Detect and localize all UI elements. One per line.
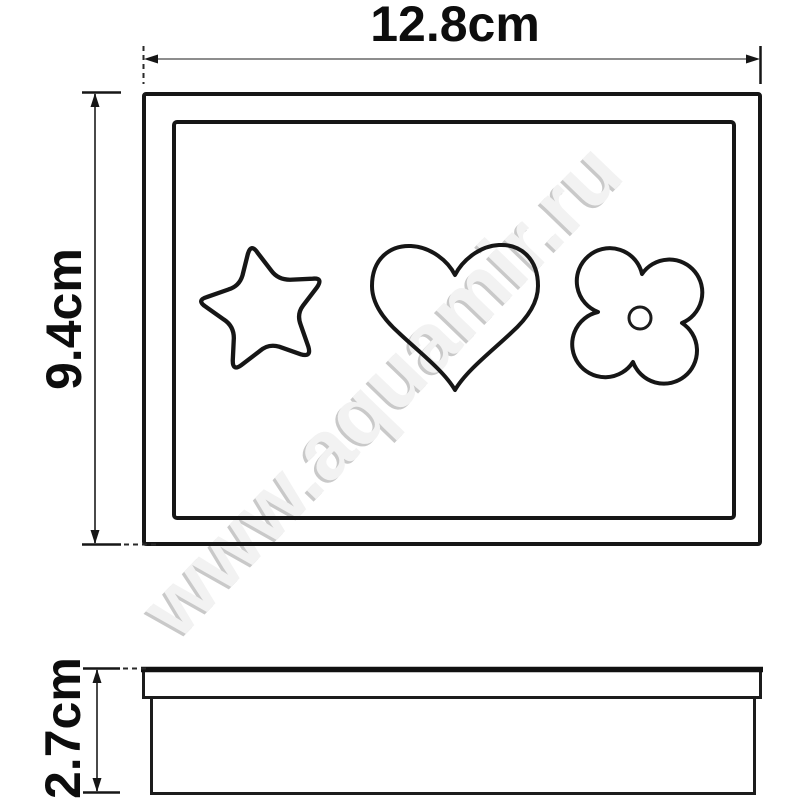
height-dimension: 9.4cm xyxy=(36,93,156,545)
technical-drawing-page: www.aquamir.ru www.aquamir.ru xyxy=(0,0,800,800)
depth-arrowhead-bottom xyxy=(93,778,102,792)
width-arrowhead-right xyxy=(746,55,760,64)
width-arrowhead-left xyxy=(144,55,158,64)
depth-dimension-label: 2.7cm xyxy=(35,657,91,799)
flower-center-dot xyxy=(629,307,651,329)
width-dimension-label: 12.8cm xyxy=(370,0,540,52)
height-arrowhead-bottom xyxy=(91,530,100,544)
side-view xyxy=(141,670,763,794)
watermark: www.aquamir.ru www.aquamir.ru xyxy=(120,125,639,658)
width-dimension: 12.8cm xyxy=(144,0,761,84)
flower-icon xyxy=(572,248,702,383)
star-icon xyxy=(201,248,319,367)
flower-petals-outline xyxy=(572,248,702,383)
depth-dimension: 2.7cm xyxy=(35,657,150,799)
side-view-body xyxy=(152,698,755,794)
depth-arrowhead-top xyxy=(93,669,102,683)
height-arrowhead-top xyxy=(91,93,100,107)
drawing-canvas: www.aquamir.ru www.aquamir.ru xyxy=(0,0,800,800)
side-view-rim xyxy=(144,670,761,698)
watermark-text: www.aquamir.ru xyxy=(123,125,640,656)
height-dimension-label: 9.4cm xyxy=(36,248,92,390)
